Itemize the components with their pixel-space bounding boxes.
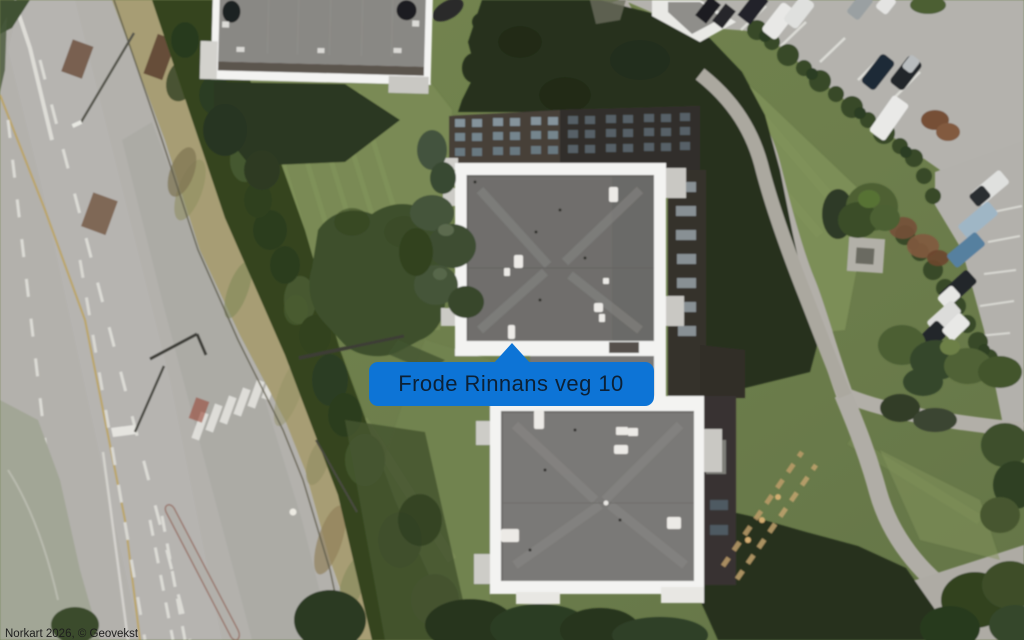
svg-text:Norkart 2026, © Geovekst: Norkart 2026, © Geovekst bbox=[5, 628, 139, 640]
svg-text:Frode Rinnans veg 10: Frode Rinnans veg 10 bbox=[398, 371, 623, 396]
